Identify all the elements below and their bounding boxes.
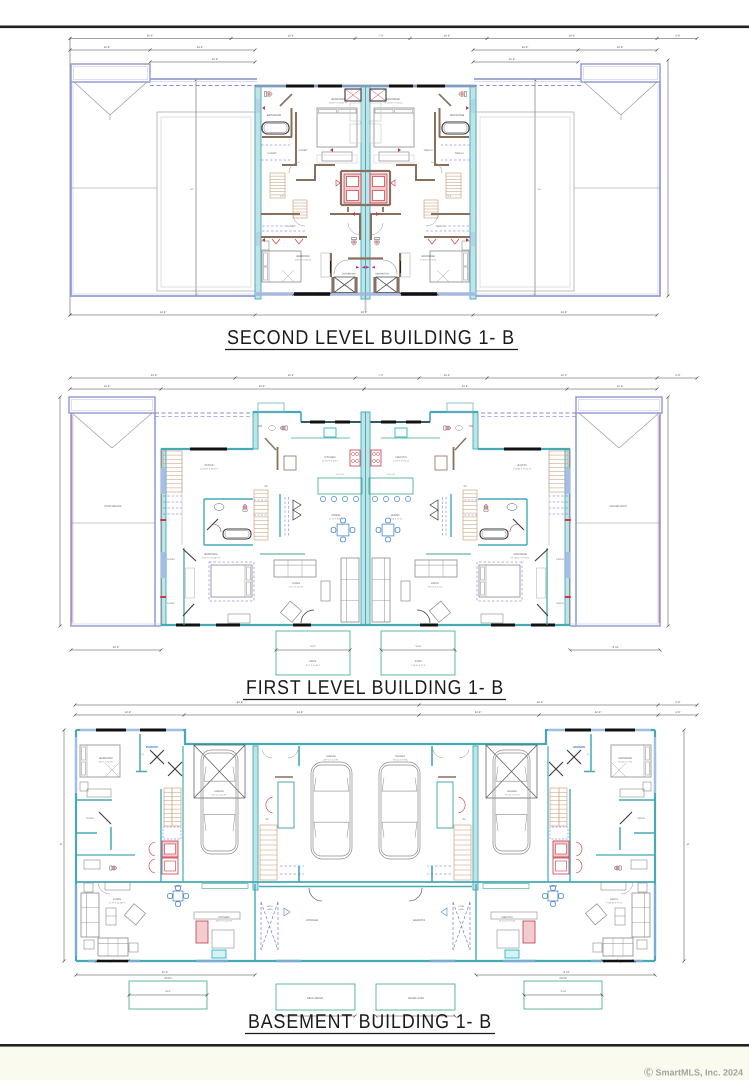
svg-text:LIVING: LIVING: [113, 898, 121, 901]
svg-text:7'-0": 7'-0": [378, 35, 383, 38]
svg-text:7'-0": 7'-0": [378, 374, 383, 377]
svg-text:24'-8": 24'-8": [561, 311, 568, 314]
svg-text:36'-8": 36'-8": [147, 35, 154, 38]
svg-text:BATHROOM: BATHROOM: [267, 114, 281, 117]
svg-text:11.43 FT X 10.9 FT: 11.43 FT X 10.9 FT: [200, 468, 219, 471]
svg-text:6'-8": 6'-8": [675, 701, 680, 704]
svg-text:36'-8": 36'-8": [151, 374, 158, 377]
svg-text:13'-8": 13'-8": [125, 711, 132, 714]
svg-text:16'-4": 16'-4": [288, 35, 295, 38]
svg-text:CLOSET: CLOSET: [298, 149, 308, 152]
svg-text:36'-8": 36'-8": [537, 701, 544, 704]
svg-text:24'-8": 24'-8": [197, 46, 204, 49]
svg-text:12'-8": 12'-8": [617, 385, 624, 388]
svg-text:11.07 FT X 9.5 FT: 11.07 FT X 9.5 FT: [295, 259, 312, 262]
svg-text:13'-8": 13'-8": [104, 385, 111, 388]
svg-text:24'-8": 24'-8": [160, 311, 167, 314]
svg-text:12'-8": 12'-8": [595, 711, 602, 714]
svg-text:SEATING: SEATING: [336, 473, 345, 476]
svg-text:20'-8": 20'-8": [113, 646, 120, 649]
svg-text:24'-8": 24'-8": [522, 46, 529, 49]
svg-text:13'-8": 13'-8": [104, 46, 111, 49]
svg-text:LIVING: LIVING: [292, 582, 300, 585]
svg-text:BASEMENT BUILDING 1- B: BASEMENT BUILDING 1- B: [248, 1011, 492, 1033]
svg-text:17 FT X 11.4 FT: 17 FT X 11.4 FT: [289, 586, 305, 589]
svg-text:OFFICE: OFFICE: [204, 464, 213, 467]
svg-text:Ⓒ SmartMLS, Inc. 2024: Ⓒ SmartMLS, Inc. 2024: [644, 1068, 743, 1078]
svg-text:11.47 FT X 11 FT: 11.47 FT X 11 FT: [322, 460, 339, 463]
svg-text:30'-8": 30'-8": [361, 311, 368, 314]
svg-text:DINING: DINING: [174, 885, 182, 888]
svg-text:DECK ABOVE: DECK ABOVE: [307, 997, 323, 1000]
svg-text:11.43 FT X 12.67 FT: 11.43 FT X 12.67 FT: [329, 102, 349, 105]
svg-text:ROOF BELOW: ROOF BELOW: [105, 505, 123, 508]
svg-text:24'-8": 24'-8": [259, 385, 266, 388]
svg-text:11 FT X 9.5 FT: 11 FT X 9.5 FT: [329, 518, 344, 521]
svg-text:PATIO: PATIO: [164, 977, 171, 980]
svg-text:12'-8": 12'-8": [509, 58, 516, 61]
svg-text:24'-8": 24'-8": [475, 711, 482, 714]
svg-text:9 FT X 14.8 FT: 9 FT X 14.8 FT: [306, 664, 321, 667]
svg-text:SECOND LEVEL BUILDING 1- B: SECOND LEVEL BUILDING 1- B: [227, 327, 515, 349]
svg-text:BEDROOM: BEDROOM: [332, 98, 345, 101]
svg-text:6'-8": 6'-8": [675, 35, 680, 38]
svg-text:GARAGE: GARAGE: [214, 790, 224, 793]
svg-text:18'-0": 18'-0": [165, 990, 171, 993]
svg-text:CL.: CL.: [142, 753, 145, 756]
svg-text:16'-4": 16'-4": [444, 35, 451, 38]
svg-text:23'-0": 23'-0": [561, 374, 568, 377]
svg-text:AREA: AREA: [267, 908, 273, 911]
svg-text:24'-8": 24'-8": [462, 385, 469, 388]
svg-text:16'-4": 16'-4": [288, 374, 295, 377]
svg-text:24'-8": 24'-8": [297, 711, 304, 714]
svg-text:16'-0": 16'-0": [310, 645, 316, 648]
svg-text:16'-4": 16'-4": [444, 374, 451, 377]
svg-text:11.07 FT X 12.67 FT: 11.07 FT X 12.67 FT: [202, 557, 222, 560]
svg-text:4'-8": 4'-8": [675, 711, 680, 714]
svg-text:CLOSET: CLOSET: [286, 225, 296, 228]
svg-text:DECK: DECK: [310, 660, 317, 663]
svg-text:KITCHEN: KITCHEN: [325, 456, 336, 459]
svg-text:17 FT X 12.33 FT: 17 FT X 12.33 FT: [109, 902, 126, 905]
svg-text:MECH.: MECH.: [267, 905, 274, 908]
svg-text:GARAGE: GARAGE: [326, 755, 336, 758]
svg-text:44'-8": 44'-8": [237, 701, 244, 704]
svg-text:KITCHEN: KITCHEN: [219, 916, 230, 919]
svg-text:UP: UP: [264, 485, 268, 488]
svg-text:BEDROOM: BEDROOM: [205, 553, 218, 556]
svg-text:2'-2": 2'-2": [280, 195, 284, 198]
svg-text:20'-8": 20'-8": [162, 971, 169, 974]
svg-text:16.5 FT X 12.5 FT: 16.5 FT X 12.5 FT: [216, 920, 234, 923]
svg-text:CLOSET: CLOSET: [86, 817, 95, 820]
svg-text:CLOSET: CLOSET: [267, 152, 277, 155]
svg-text:DINING: DINING: [332, 514, 341, 517]
svg-text:13'-8": 13'-8": [617, 46, 624, 49]
svg-text:CLOSET: CLOSET: [167, 558, 176, 561]
svg-text:FIRST LEVEL BUILDING 1- B: FIRST LEVEL BUILDING 1- B: [246, 677, 504, 699]
svg-text:BEDROOM: BEDROOM: [100, 757, 113, 760]
svg-text:UP: UP: [265, 818, 269, 821]
svg-text:6'-8": 6'-8": [675, 374, 680, 377]
svg-text:STORAGE: STORAGE: [306, 919, 319, 922]
svg-text:CLOSET: CLOSET: [167, 602, 176, 605]
svg-text:BATHROOM: BATHROOM: [342, 273, 355, 276]
svg-text:BEDROOM: BEDROOM: [297, 255, 310, 258]
svg-text:24'-8": 24'-8": [569, 35, 576, 38]
svg-text:12'-8": 12'-8": [212, 58, 219, 61]
svg-text:12 FT X 11.4 FT: 12 FT X 11.4 FT: [99, 761, 115, 764]
svg-text:21 FT X 11.4 FT: 21 FT X 11.4 FT: [212, 794, 228, 797]
svg-text:20 FT X 11.3 FT: 20 FT X 11.3 FT: [324, 759, 340, 762]
